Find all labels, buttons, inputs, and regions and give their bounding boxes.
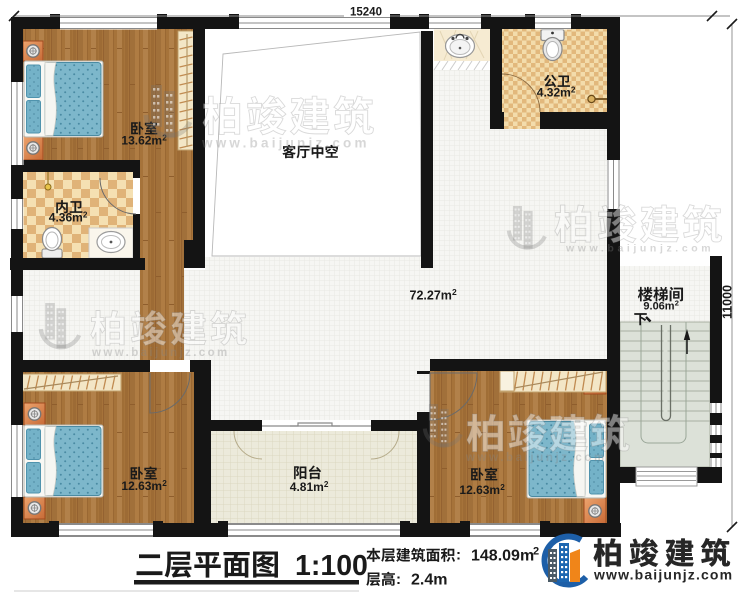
svg-text:2: 2 — [571, 85, 576, 94]
svg-text:1:100: 1:100 — [295, 550, 368, 582]
svg-text:2: 2 — [324, 480, 329, 489]
svg-text:4.36m: 4.36m — [49, 211, 83, 225]
svg-text:www.baijunjz.com: www.baijunjz.com — [91, 347, 230, 359]
svg-text:2: 2 — [500, 483, 505, 492]
svg-text:4.32m: 4.32m — [537, 86, 571, 100]
svg-text:9.06m: 9.06m — [643, 301, 674, 313]
svg-text:2: 2 — [162, 479, 167, 488]
svg-text:12.63m: 12.63m — [459, 483, 500, 497]
svg-text:www.baijunjz.com: www.baijunjz.com — [565, 243, 714, 255]
svg-text:2: 2 — [675, 299, 679, 308]
svg-text:2: 2 — [83, 210, 88, 219]
svg-text:15240: 15240 — [350, 7, 382, 19]
svg-text:148.09m: 148.09m — [471, 548, 534, 565]
svg-text:www.baijunjz.com: www.baijunjz.com — [593, 567, 733, 583]
svg-text:2: 2 — [452, 287, 457, 297]
svg-text:13.62m: 13.62m — [121, 134, 162, 148]
svg-text::: : — [456, 547, 461, 564]
svg-text:72.27m: 72.27m — [410, 289, 452, 303]
svg-text:2.4m: 2.4m — [411, 572, 447, 589]
svg-text:11000: 11000 — [721, 285, 735, 319]
svg-text:2: 2 — [533, 546, 539, 558]
svg-text::: : — [396, 571, 401, 588]
svg-text:www.baijunjz.com: www.baijunjz.com — [201, 136, 370, 151]
svg-text:4.81m: 4.81m — [290, 480, 324, 494]
svg-text:www.baijunjz.com: www.baijunjz.com — [465, 452, 607, 464]
svg-text:12.63m: 12.63m — [121, 479, 162, 493]
